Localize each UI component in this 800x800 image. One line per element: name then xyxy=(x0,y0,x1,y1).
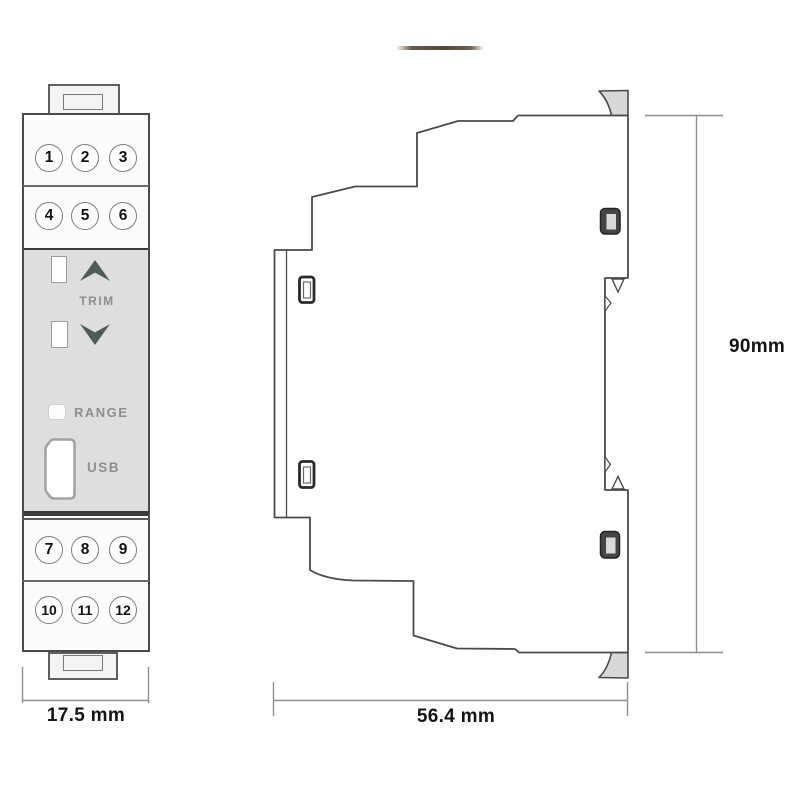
dimension-drawing-page: 1 2 3 4 5 6 TRIM RANGE USB 7 8 9 10 11 1… xyxy=(0,0,800,800)
side-profile-outline xyxy=(275,116,629,653)
height-dimension-lines xyxy=(645,116,723,653)
width-dimension-lines xyxy=(23,667,149,703)
side-view-drawing xyxy=(0,0,800,800)
rear-slot-lower xyxy=(601,532,620,559)
side-bottom-rail-clip xyxy=(599,653,628,679)
rear-slot-upper xyxy=(601,209,621,235)
rail-hook-bottom-icon xyxy=(612,477,624,490)
front-slot-upper xyxy=(300,277,315,303)
width-dimension-label: 17.5 mm xyxy=(26,705,146,727)
side-top-rail-clip xyxy=(599,91,628,116)
rail-hook-top-icon xyxy=(612,279,624,292)
rail-notch-top-icon xyxy=(605,296,611,311)
front-slot-lower xyxy=(300,462,315,488)
depth-dimension-label: 56.4 mm xyxy=(396,706,516,728)
height-dimension-label: 90mm xyxy=(729,336,785,358)
rail-notch-bottom-icon xyxy=(605,457,611,472)
